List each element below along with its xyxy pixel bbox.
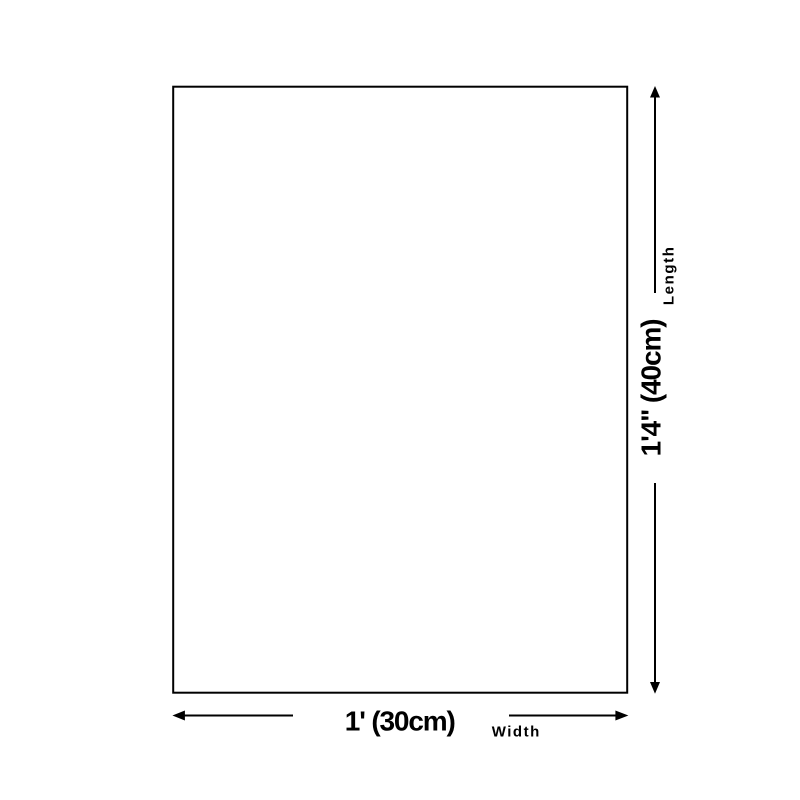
svg-text:Width: Width — [492, 724, 540, 741]
svg-text:1'4" (40cm): 1'4" (40cm) — [636, 318, 667, 456]
svg-text:1' (30cm): 1' (30cm) — [345, 705, 456, 736]
svg-text:Length: Length — [661, 247, 678, 305]
